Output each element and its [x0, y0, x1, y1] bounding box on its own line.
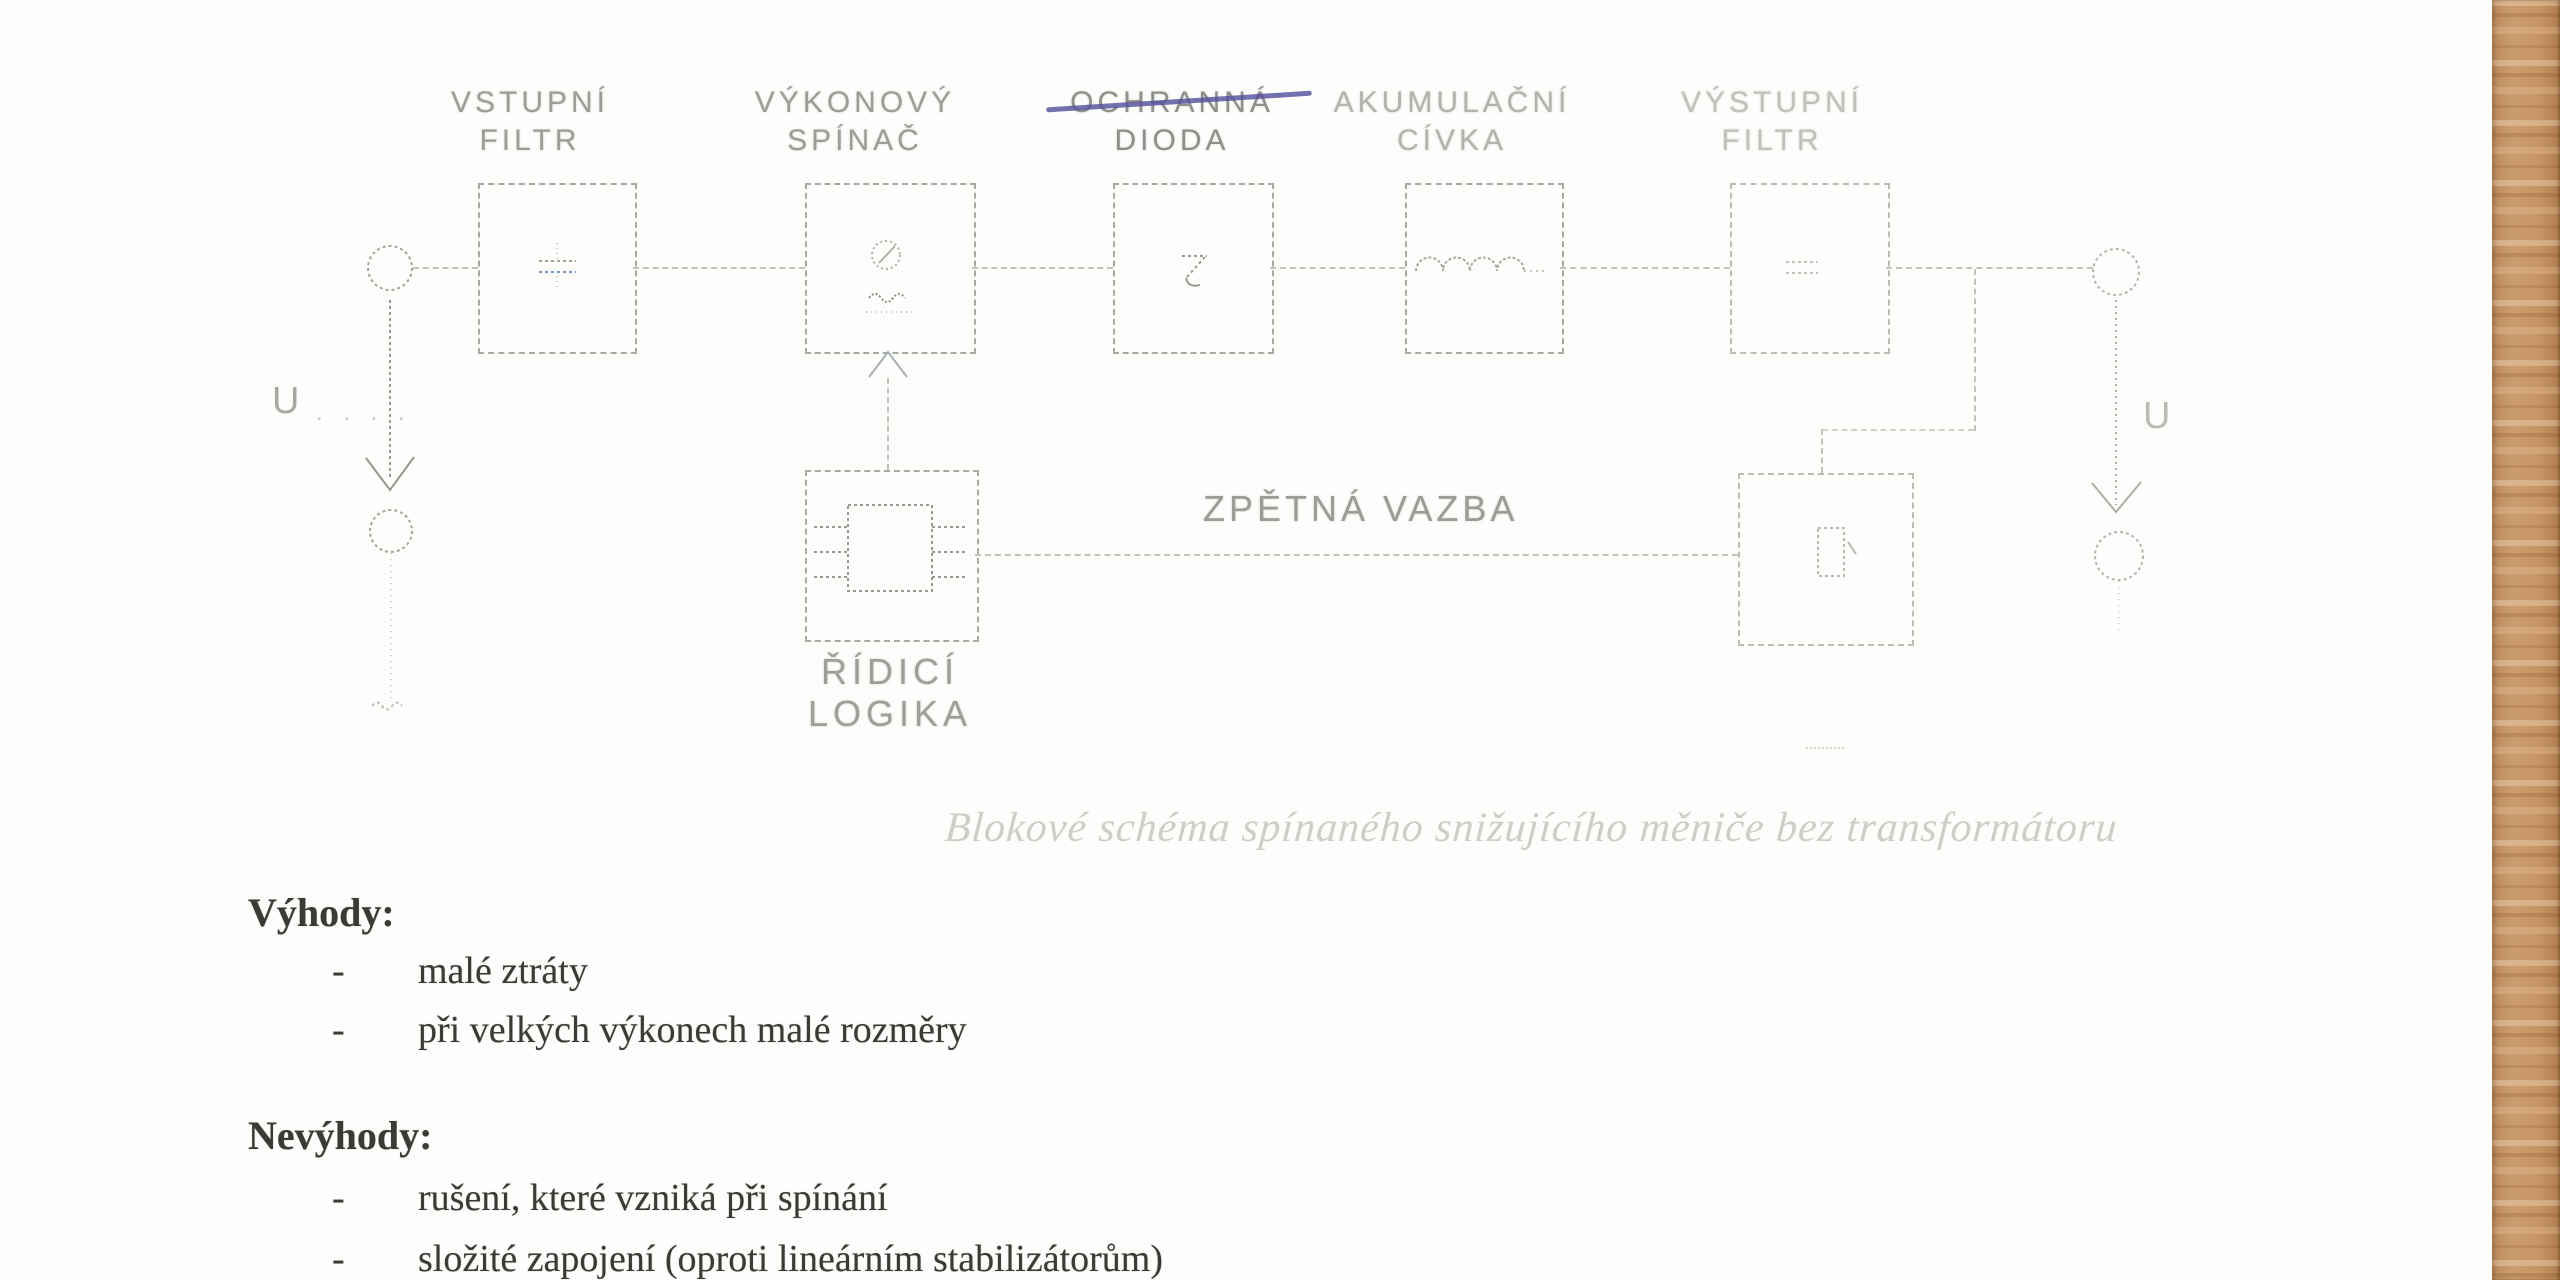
bullet-dash: -	[332, 1237, 345, 1280]
bullet-dash: -	[332, 1176, 345, 1220]
input-terminal-bottom	[370, 510, 412, 710]
inductor-coil-symbol	[1416, 258, 1544, 272]
output-terminal-bottom	[2095, 532, 2143, 635]
input-voltage-arrow	[366, 300, 414, 490]
bullet-dash: -	[332, 1008, 345, 1052]
sense-element-symbol	[1806, 528, 1856, 748]
desk-wood-edge	[2492, 0, 2560, 1280]
transistor-symbol-power-switch	[866, 241, 912, 312]
disadvantage-item: složité zapojení (oproti lineárním stabi…	[418, 1237, 1163, 1280]
capacitor-symbol-input-filter	[539, 243, 576, 291]
diode-symbol	[1182, 256, 1207, 286]
scanned-page: VSTUPNÍ FILTR VÝKONOVÝ SPÍNAČ OCHRANNÁ D…	[0, 0, 2560, 1280]
label-control-logic: ŘÍDICÍ LOGIKA	[710, 651, 1070, 735]
control-arrow-head	[869, 352, 907, 377]
label-line: LOGIKA	[710, 693, 1070, 735]
output-voltage-arrow	[2092, 300, 2141, 512]
output-voltage-label: U	[2143, 395, 2172, 438]
output-terminal	[2093, 249, 2139, 295]
advantage-item: malé ztráty	[418, 949, 588, 993]
capacitor-symbol-output-filter	[1786, 262, 1818, 273]
figure-caption: Blokové schéma spínaného snižujícího měn…	[943, 804, 2306, 852]
block-diagram: VSTUPNÍ FILTR VÝKONOVÝ SPÍNAČ OCHRANNÁ D…	[0, 0, 2560, 1280]
disadvantage-item: rušení, které vzniká při spínání	[418, 1176, 888, 1220]
ic-chip-symbol	[814, 505, 966, 591]
advantage-item: při velkých výkonech malé rozměry	[418, 1008, 967, 1052]
disadvantages-heading: Nevýhody:	[248, 1112, 432, 1159]
bullet-dash: -	[332, 949, 345, 993]
label-line: ŘÍDICÍ	[710, 651, 1070, 693]
diagram-symbols	[0, 0, 2560, 1280]
input-voltage-subscript-dots: . . . .	[316, 399, 412, 427]
input-terminal	[368, 246, 412, 290]
advantages-heading: Výhody:	[248, 889, 395, 936]
input-voltage-label: U	[272, 380, 301, 423]
label-feedback: ZPĚTNÁ VAZBA	[1203, 488, 1518, 530]
